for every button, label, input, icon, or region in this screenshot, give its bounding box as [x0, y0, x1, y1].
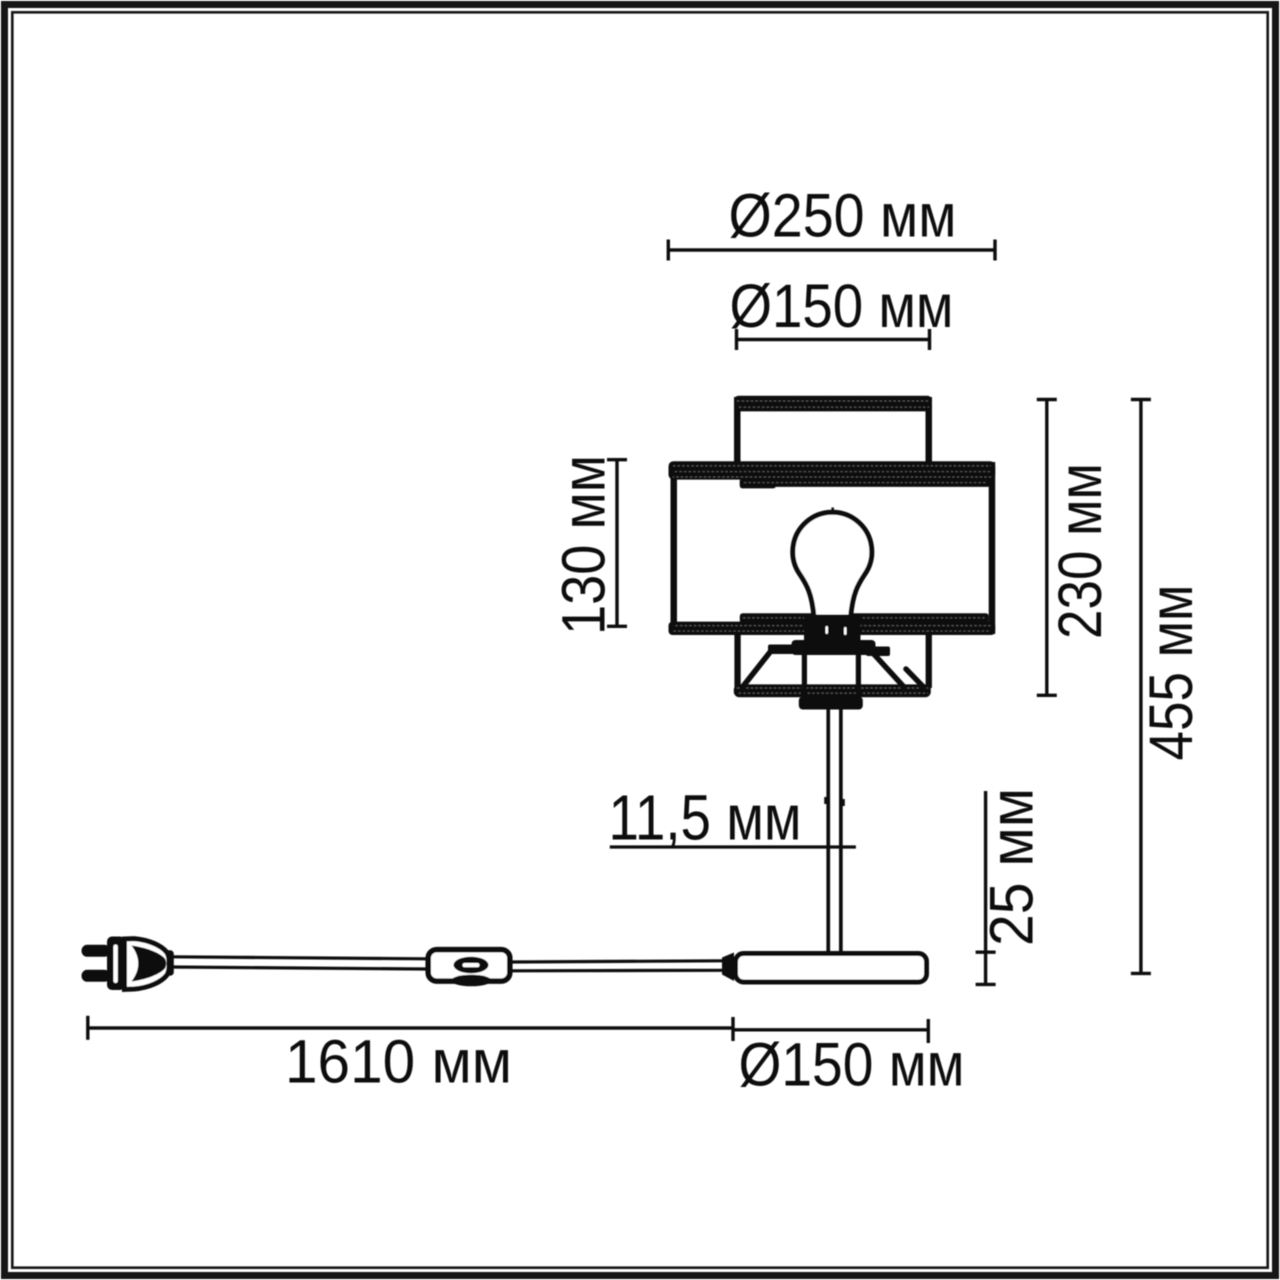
svg-text:Ø150 мм: Ø150 мм: [730, 272, 954, 340]
svg-text:1610 мм: 1610 мм: [285, 1028, 512, 1096]
svg-text:11,5 мм: 11,5 мм: [609, 782, 802, 854]
svg-text:Ø250 мм: Ø250 мм: [729, 182, 957, 250]
svg-text:230 мм: 230 мм: [1046, 463, 1114, 639]
svg-text:130 мм: 130 мм: [550, 455, 618, 635]
svg-text:25 мм: 25 мм: [978, 788, 1046, 946]
svg-text:Ø150 мм: Ø150 мм: [739, 1030, 965, 1098]
svg-text:455 мм: 455 мм: [1137, 585, 1205, 761]
